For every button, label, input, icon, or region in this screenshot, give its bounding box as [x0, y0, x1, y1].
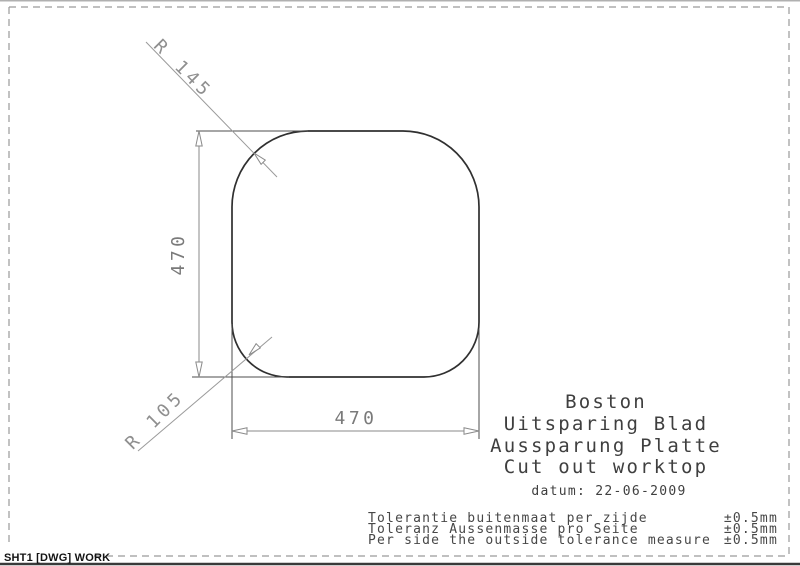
tolerance-table: Tolerantie buitenmaat per zijde ±0.5mm T…: [368, 511, 778, 548]
title-product: Boston: [565, 391, 647, 413]
title-line-en: Cut out worktop: [504, 456, 709, 478]
dim-arrow-left-icon: [232, 428, 247, 434]
radius-bottom-callout: R 105: [121, 337, 272, 454]
drawing-sheet: 470 470 R 145 R 105 Boston Uitsparing Bl…: [0, 0, 800, 566]
radius-bottom-leader-line: [138, 337, 272, 451]
radius-top-label: R 145: [149, 35, 216, 102]
sheet-tab-label[interactable]: SHT1 [DWG] WORK: [4, 552, 110, 564]
radius-bottom-label: R 105: [121, 386, 188, 453]
radius-bottom-arrow-icon: [249, 344, 260, 355]
cad-drawing-canvas: 470 470 R 145 R 105 Boston Uitsparing Bl…: [0, 0, 800, 566]
date-label: datum: 22-06-2009: [531, 484, 686, 499]
height-dimension: 470: [168, 131, 202, 377]
width-dimension: 470: [232, 408, 479, 434]
dim-arrow-right-icon: [464, 428, 479, 434]
title-line-nl: Uitsparing Blad: [504, 413, 709, 435]
tolerance-row-value: ±0.5mm: [724, 533, 778, 548]
dim-arrow-down-icon: [196, 362, 202, 377]
dim-arrow-up-icon: [196, 131, 202, 146]
height-dimension-label: 470: [168, 232, 189, 275]
title-block: Boston Uitsparing Blad Aussparung Platte…: [490, 391, 722, 499]
radius-top-callout: R 145: [146, 35, 277, 177]
title-line-de: Aussparung Platte: [490, 435, 722, 457]
tolerance-row-label: Per side the outside tolerance measure: [368, 533, 711, 548]
extension-lines: [192, 131, 479, 439]
width-dimension-label: 470: [334, 408, 377, 429]
